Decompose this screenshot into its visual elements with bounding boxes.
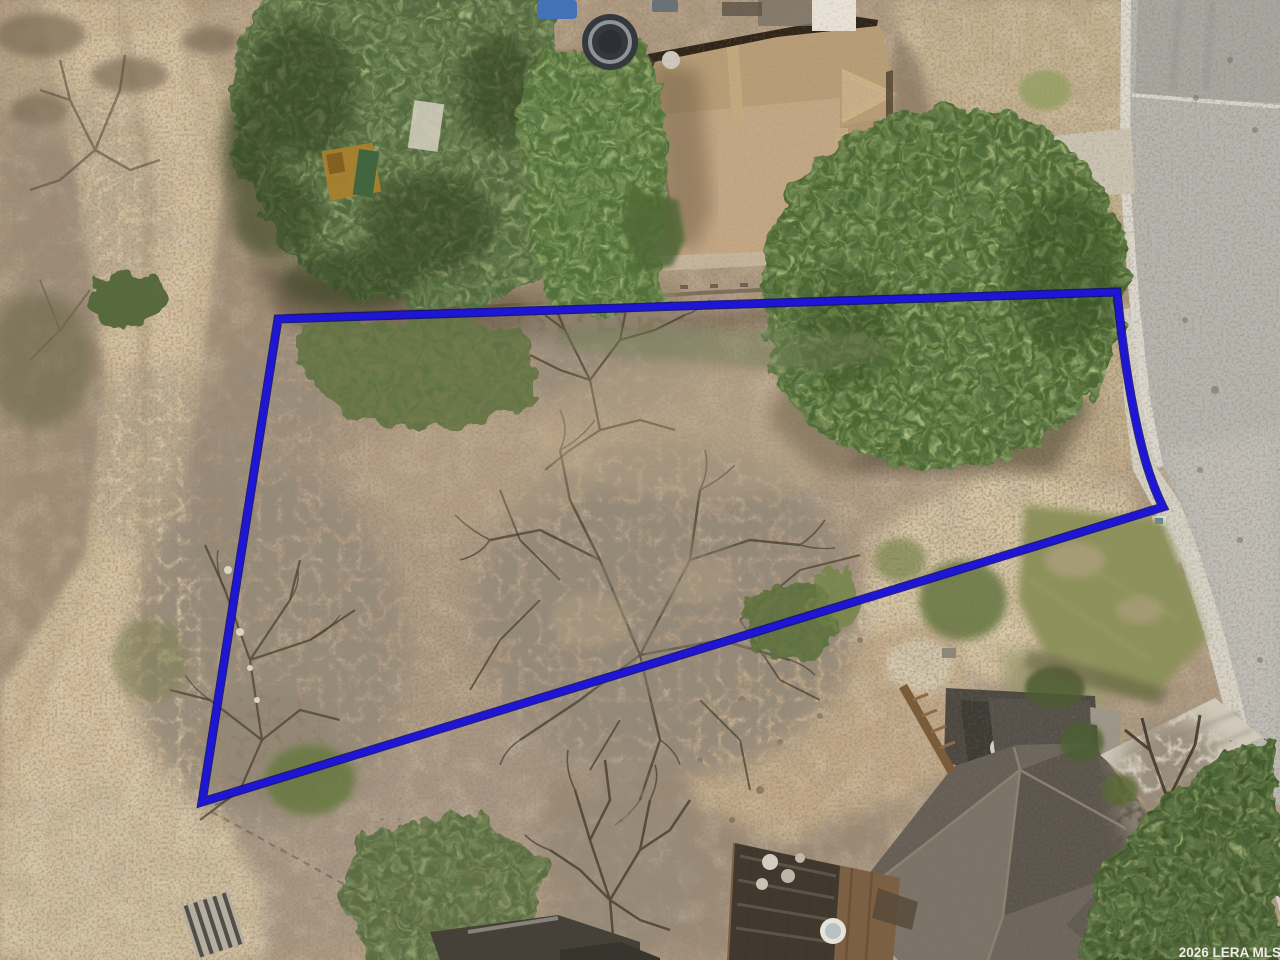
svg-text:2026 LERA MLS: 2026 LERA MLS — [1179, 945, 1280, 960]
